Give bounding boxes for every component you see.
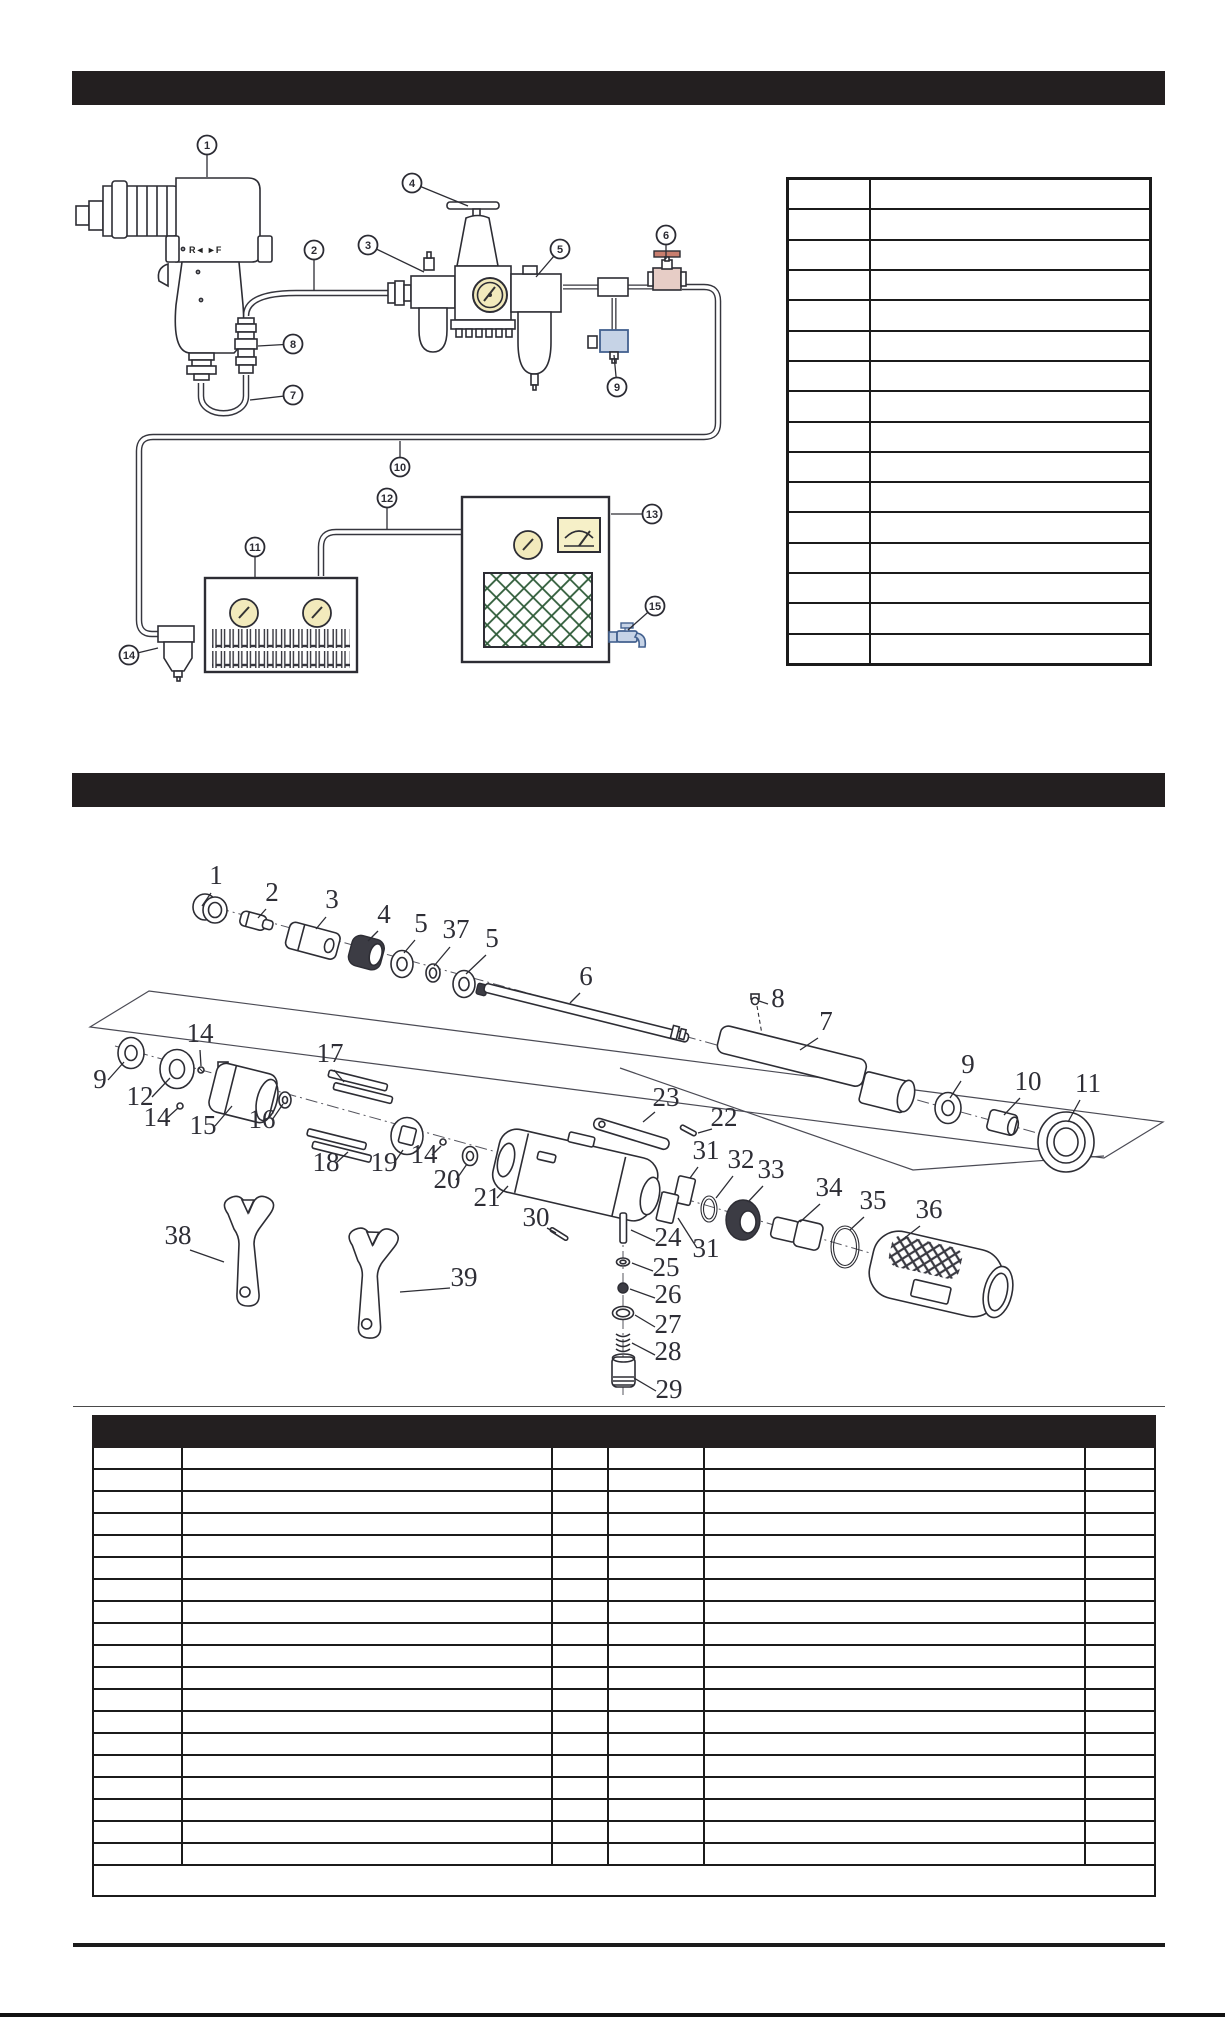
callout-15: 15: [646, 597, 665, 616]
table-cell: [871, 453, 1149, 481]
table-cell: [1086, 1734, 1154, 1756]
part-number-label: 33: [758, 1154, 785, 1184]
part-number-label: 7: [819, 1006, 833, 1036]
callout-5: 5: [551, 240, 570, 259]
table-cell: [871, 271, 1149, 299]
table-cell: [1086, 1470, 1154, 1492]
table-cell: [183, 1448, 553, 1470]
part-number-label: 37: [443, 914, 470, 944]
table-cell: [553, 1668, 609, 1690]
table-row: [789, 241, 1149, 271]
table-note-row: [94, 1866, 1154, 1895]
rotation-marking: R◄ ►F: [189, 245, 222, 255]
part-number-label: 15: [190, 1110, 217, 1140]
part-14-screw-c: [440, 1139, 446, 1145]
table-cell: [183, 1844, 553, 1866]
table-cell: [553, 1514, 609, 1536]
part-33-knurled-ring: [726, 1200, 760, 1240]
table-cell: [553, 1756, 609, 1778]
table-cell: [705, 1734, 1086, 1756]
table-cell: [609, 1580, 705, 1602]
table-row: [94, 1470, 1154, 1492]
callout-3: 3: [359, 236, 378, 255]
part-number-label: 29: [656, 1374, 683, 1404]
part-number-label: 23: [653, 1082, 680, 1112]
table-cell: [609, 1646, 705, 1668]
table-cell: [183, 1602, 553, 1624]
footer-rule: [73, 1943, 1165, 1947]
table-cell: [1086, 1690, 1154, 1712]
callout-10: 10: [391, 458, 410, 477]
table-cell: [1086, 1646, 1154, 1668]
table-cell: [183, 1536, 553, 1558]
part-number-label: 1: [209, 860, 223, 890]
table-cell: [705, 1822, 1086, 1844]
table-cell: [553, 1470, 609, 1492]
part-number-label: 35: [860, 1185, 887, 1215]
table-cell: [609, 1690, 705, 1712]
table-cell: [1086, 1514, 1154, 1536]
table-row: [94, 1844, 1154, 1866]
svg-text:1: 1: [204, 140, 210, 152]
part-number-label: 19: [371, 1147, 398, 1177]
part-drain-faucet-15: [609, 623, 645, 647]
table-cell: [94, 1536, 183, 1558]
part-29-bushing: [612, 1354, 635, 1387]
table-top-rule: [73, 1406, 1165, 1407]
part-number-label: 9: [93, 1064, 107, 1094]
table-cell: [789, 635, 871, 663]
table-cell: [553, 1558, 609, 1580]
part-number-label: 17: [317, 1038, 344, 1068]
part-34-stepped-bushing: [769, 1214, 824, 1252]
table-row: [789, 453, 1149, 483]
part-27-ring: [613, 1307, 634, 1320]
svg-text:9: 9: [614, 382, 620, 394]
table-cell: [609, 1778, 705, 1800]
tee-fitting: [598, 278, 628, 296]
part-number-label: 38: [165, 1220, 192, 1250]
exploded-view-diagram: 1234537568791011912141415161718191420212…: [90, 860, 1163, 1404]
part-number-label: 6: [579, 961, 593, 991]
part-lubricator-5: [511, 266, 561, 390]
air-supply-diagram: R◄ ►F: [76, 136, 718, 682]
table-cell: [789, 180, 871, 208]
svg-text:5: 5: [557, 244, 563, 256]
table-cell: [789, 423, 871, 451]
part-11-end-nut: [1038, 1112, 1094, 1172]
table-cell: [94, 1646, 183, 1668]
table-cell: [183, 1822, 553, 1844]
table-cell: [609, 1712, 705, 1734]
part-24-rod: [620, 1213, 627, 1243]
part-30-pin: [549, 1227, 568, 1241]
table-cell: [705, 1624, 1086, 1646]
table-cell: [609, 1822, 705, 1844]
table-row: [789, 301, 1149, 331]
part-37-washer: [426, 964, 440, 982]
table-cell: [871, 574, 1149, 602]
table-cell: [609, 1536, 705, 1558]
table-cell: [1086, 1756, 1154, 1778]
table-cell: [553, 1712, 609, 1734]
callout-8: 8: [284, 335, 303, 354]
table-row: [789, 574, 1149, 604]
svg-text:3: 3: [365, 240, 371, 252]
table-cell: [183, 1470, 553, 1492]
table-cell: [609, 1602, 705, 1624]
table-cell: [871, 241, 1149, 269]
svg-text:7: 7: [290, 390, 296, 402]
table-cell: [94, 1690, 183, 1712]
part-20-bearing: [463, 1147, 478, 1166]
parts-table: [92, 1448, 1156, 1897]
table-cell: [1086, 1448, 1154, 1470]
table-cell: [183, 1492, 553, 1514]
part-2-collet: [239, 910, 275, 933]
part-14-screw-a: [198, 1067, 204, 1073]
table-row: [94, 1734, 1154, 1756]
table-cell: [789, 362, 871, 390]
part-9-bearing-rear: [935, 1093, 961, 1124]
part-number-label: 4: [377, 899, 391, 929]
table-cell: [183, 1646, 553, 1668]
part-17-blades: [325, 1070, 395, 1104]
part-drain-valve-9: [588, 330, 628, 363]
table-cell: [871, 604, 1149, 632]
table-cell: [789, 483, 871, 511]
table-row: [789, 332, 1149, 362]
table-cell: [609, 1668, 705, 1690]
part-number-label: 21: [474, 1182, 501, 1212]
table-cell: [609, 1624, 705, 1646]
part-number-label: 30: [523, 1202, 550, 1232]
table-cell: [183, 1778, 553, 1800]
part-number-label: 18: [313, 1147, 340, 1177]
part-38-wrench: [224, 1196, 273, 1306]
table-row: [94, 1668, 1154, 1690]
table-row: [94, 1822, 1154, 1844]
part-number-label: 2: [265, 877, 279, 907]
table-cell: [94, 1448, 183, 1470]
meter-icon: [558, 518, 600, 552]
table-row: [789, 423, 1149, 453]
table-cell: [705, 1536, 1086, 1558]
part-number-label: 22: [711, 1102, 738, 1132]
table-cell: [94, 1558, 183, 1580]
table-cell: [553, 1580, 609, 1602]
table-cell: [94, 1844, 183, 1866]
table-row: [789, 180, 1149, 210]
table-row: [94, 1448, 1154, 1470]
part-number-label: 39: [451, 1262, 478, 1292]
table-cell: [553, 1822, 609, 1844]
table-row: [789, 544, 1149, 574]
table-row: [789, 271, 1149, 301]
table-row: [789, 604, 1149, 634]
table-cell: [553, 1602, 609, 1624]
table-cell: [871, 513, 1149, 541]
part-air-dryer-13: [462, 497, 609, 662]
part-number-label: 11: [1075, 1068, 1101, 1098]
table-cell: [705, 1602, 1086, 1624]
part-inline-filter-14: [158, 626, 194, 681]
part-number-label: 25: [653, 1252, 680, 1282]
table-cell: [94, 1602, 183, 1624]
table-cell: [705, 1690, 1086, 1712]
part-number-label: 10: [1015, 1066, 1042, 1096]
table-cell: [553, 1734, 609, 1756]
callout-13: 13: [643, 505, 662, 524]
table-cell: [183, 1624, 553, 1646]
part-regulator-4: [447, 202, 515, 337]
table-row: [94, 1756, 1154, 1778]
bottom-edge-bar: [0, 2013, 1225, 2017]
table-cell: [705, 1558, 1086, 1580]
part-number-label: 14: [187, 1018, 215, 1048]
part-number-label: 24: [655, 1222, 683, 1252]
table-cell: [789, 241, 871, 269]
table-cell: [705, 1778, 1086, 1800]
table-cell: [94, 1514, 183, 1536]
svg-text:13: 13: [646, 509, 658, 521]
part-number-label: 31: [693, 1233, 720, 1263]
pressure-gauge-icon: [473, 278, 507, 312]
table-cell: [871, 392, 1149, 420]
table-row: [789, 483, 1149, 513]
table-row: [94, 1558, 1154, 1580]
part-1-cap: [193, 894, 227, 923]
table-row: [94, 1602, 1154, 1624]
table-cell: [94, 1624, 183, 1646]
table-cell: [789, 604, 871, 632]
table-row: [94, 1712, 1154, 1734]
table-cell: [183, 1734, 553, 1756]
table-cell: [871, 423, 1149, 451]
svg-text:10: 10: [394, 462, 406, 474]
table-cell: [705, 1514, 1086, 1536]
table-cell: [705, 1470, 1086, 1492]
table-cell: [553, 1536, 609, 1558]
table-cell: [183, 1668, 553, 1690]
table-cell: [553, 1800, 609, 1822]
part-32-o-ring: [701, 1196, 717, 1222]
table-row: [94, 1514, 1154, 1536]
table-row: [789, 513, 1149, 543]
part-23-lever: [592, 1117, 670, 1150]
table-cell: [1086, 1668, 1154, 1690]
table-cell: [94, 1668, 183, 1690]
callout-14: 14: [120, 646, 139, 665]
table-row: [789, 635, 1149, 663]
table-cell: [789, 210, 871, 238]
table-cell: [1086, 1602, 1154, 1624]
part-ball-valve-6: [648, 251, 686, 290]
table-cell: [705, 1492, 1086, 1514]
part-number-label: 5: [485, 923, 499, 953]
table-cell: [789, 574, 871, 602]
table-cell: [789, 453, 871, 481]
part-39-wrench: [346, 1228, 399, 1339]
table-row: [94, 1690, 1154, 1712]
table-cell: [183, 1712, 553, 1734]
part-4-knurled-nut: [346, 933, 386, 971]
part-filter-3: [388, 252, 455, 352]
part-compressor-11: [205, 578, 357, 672]
callout-6: 6: [657, 226, 676, 245]
callout-4: 4: [403, 174, 422, 193]
table-cell: [789, 271, 871, 299]
parts-table-header-bar: [92, 1415, 1156, 1448]
table-cell: [609, 1448, 705, 1470]
table-cell: [94, 1756, 183, 1778]
table-cell: [705, 1580, 1086, 1602]
callout-7: 7: [284, 386, 303, 405]
table-cell: [705, 1448, 1086, 1470]
table-cell: [871, 180, 1149, 208]
table-cell: [94, 1580, 183, 1602]
table-cell: [94, 1800, 183, 1822]
table-cell: [789, 332, 871, 360]
table-cell: [705, 1646, 1086, 1668]
table-row: [94, 1778, 1154, 1800]
table-row: [789, 362, 1149, 392]
table-cell: [871, 635, 1149, 663]
part-number-label: 36: [916, 1194, 943, 1224]
table-cell: [94, 1470, 183, 1492]
table-row: [94, 1800, 1154, 1822]
table-cell: [705, 1844, 1086, 1866]
part-5-bearing-b: [453, 971, 475, 998]
table-cell: [1086, 1778, 1154, 1800]
table-cell: [183, 1800, 553, 1822]
table-cell: [871, 301, 1149, 329]
hose-2: [246, 293, 388, 316]
table-cell: [94, 1822, 183, 1844]
table-cell: [1086, 1624, 1154, 1646]
table-cell: [871, 483, 1149, 511]
svg-text:14: 14: [123, 650, 136, 662]
part-25-washer: [617, 1258, 630, 1266]
table-cell: [1086, 1580, 1154, 1602]
table-cell: [94, 1778, 183, 1800]
table-cell: [789, 301, 871, 329]
part-16-washer: [279, 1092, 291, 1108]
part-26-nut: [618, 1283, 628, 1293]
reference-table: [786, 177, 1152, 666]
table-cell: [94, 1734, 183, 1756]
part-coupler-8: [235, 318, 257, 373]
table-cell: [789, 513, 871, 541]
table-row: [94, 1624, 1154, 1646]
table-row: [789, 210, 1149, 240]
table-cell: [553, 1492, 609, 1514]
table-cell: [609, 1844, 705, 1866]
part-number-label: 26: [655, 1279, 682, 1309]
table-cell: [871, 362, 1149, 390]
part-10-spacer: [986, 1109, 1020, 1136]
table-cell: [609, 1756, 705, 1778]
table-cell: [705, 1756, 1086, 1778]
part-number-label: 28: [655, 1336, 682, 1366]
table-row: [94, 1536, 1154, 1558]
table-row: [94, 1646, 1154, 1668]
part-7-tube: [716, 1024, 918, 1113]
table-cell: [705, 1800, 1086, 1822]
table-cell: [94, 1492, 183, 1514]
grille: [484, 573, 592, 647]
table-cell: [871, 210, 1149, 238]
svg-text:6: 6: [663, 230, 669, 242]
svg-text:8: 8: [290, 339, 296, 351]
table-cell: [1086, 1822, 1154, 1844]
svg-text:11: 11: [249, 542, 261, 554]
svg-text:4: 4: [409, 178, 416, 190]
part-35-o-ring: [831, 1226, 859, 1268]
part-number-label: 31: [693, 1135, 720, 1165]
table-cell: [183, 1558, 553, 1580]
table-cell: [609, 1470, 705, 1492]
table-cell: [789, 392, 871, 420]
part-number-label: 8: [771, 983, 785, 1013]
part-5-bearing-a: [391, 951, 413, 978]
part-36-grip: [864, 1226, 1017, 1322]
table-cell: [609, 1492, 705, 1514]
part-3-cylinder: [284, 921, 341, 961]
table-cell: [1086, 1558, 1154, 1580]
svg-text:12: 12: [381, 493, 393, 505]
part-number-label: 20: [434, 1164, 461, 1194]
table-cell: [609, 1558, 705, 1580]
table-cell: [553, 1690, 609, 1712]
table-cell: [94, 1712, 183, 1734]
table-cell: [553, 1844, 609, 1866]
manual-page: R◄ ►F: [0, 0, 1225, 2017]
table-cell: [1086, 1844, 1154, 1866]
table-cell: [1086, 1492, 1154, 1514]
table-cell: [553, 1448, 609, 1470]
callout-1: 1: [198, 136, 217, 155]
table-cell: [553, 1646, 609, 1668]
callout-2: 2: [305, 241, 324, 260]
svg-text:15: 15: [649, 601, 661, 613]
table-cell: [183, 1580, 553, 1602]
table-cell: [789, 544, 871, 572]
table-cell: [871, 332, 1149, 360]
table-cell: [609, 1514, 705, 1536]
table-cell: [553, 1624, 609, 1646]
table-cell: [553, 1778, 609, 1800]
table-row: [789, 392, 1149, 422]
callout-12: 12: [378, 489, 397, 508]
table-row: [94, 1492, 1154, 1514]
svg-text:2: 2: [311, 245, 317, 257]
table-cell: [183, 1690, 553, 1712]
callout-11: 11: [246, 538, 265, 557]
table-cell: [705, 1668, 1086, 1690]
part-number-label: 32: [728, 1144, 755, 1174]
part-number-label: 3: [325, 884, 339, 914]
table-cell: [705, 1712, 1086, 1734]
part-number-label: 27: [655, 1309, 682, 1339]
part-6-shaft: [476, 983, 690, 1043]
table-cell: [1086, 1536, 1154, 1558]
part-number-label: 9: [961, 1049, 975, 1079]
table-cell: [609, 1800, 705, 1822]
part-number-label: 16: [249, 1104, 276, 1134]
table-cell: [871, 544, 1149, 572]
part-number-label: 14: [144, 1102, 172, 1132]
